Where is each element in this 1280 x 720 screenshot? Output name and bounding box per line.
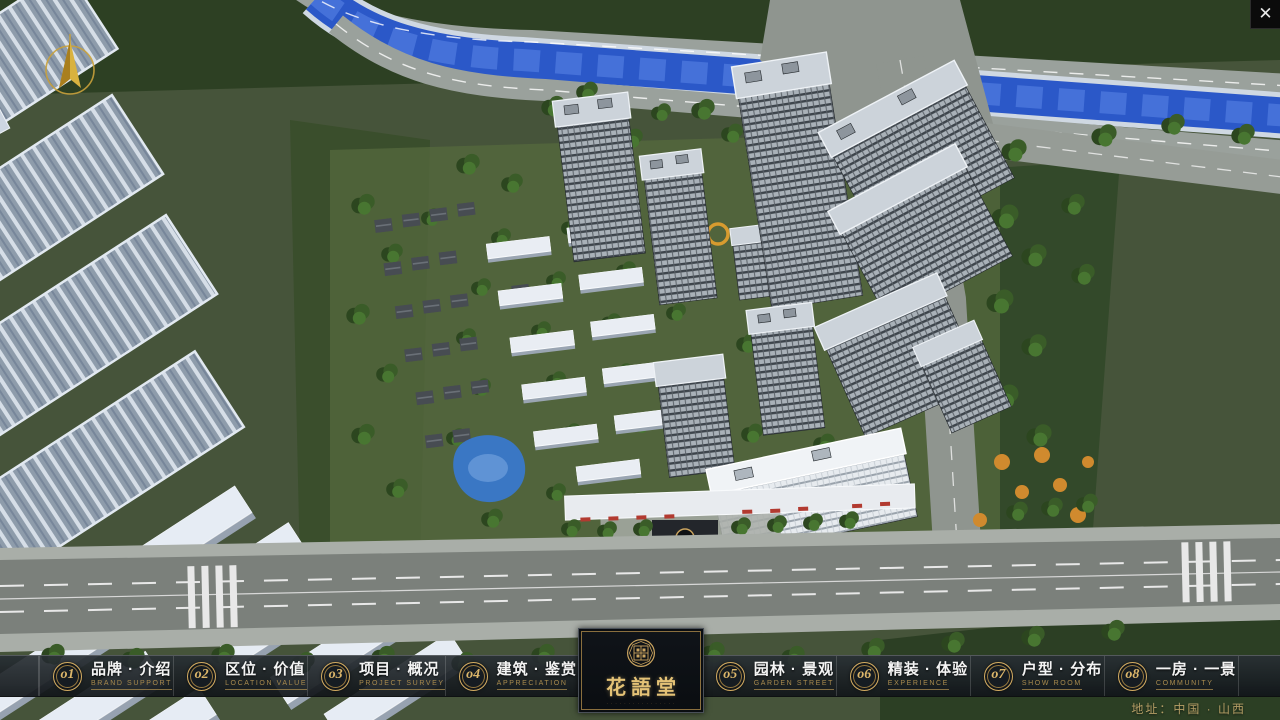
menu-item-floorplan[interactable]: o7 户型 · 分布 SHOW ROOM [970,656,1104,696]
menu-item-brand[interactable]: o1 品牌 · 介绍 BRAND SUPPORT [39,656,173,696]
menu-item-room-view[interactable]: o8 一房 · 一景 COMMUNITY [1104,656,1238,696]
menu-item-label: 品牌 · 介绍 [91,662,172,677]
seal-emblem-icon [626,638,656,668]
project-name-caption: · · · · · · · · · · · · · · · · [607,702,676,706]
menu-item-garden[interactable]: o5 园林 · 景观 GARDEN STREET [703,656,836,696]
item-number-badge: o2 [187,662,216,691]
menu-item-sublabel: BRAND SUPPORT [91,680,172,690]
item-number-badge: o8 [1118,662,1147,691]
item-number-badge: o6 [850,662,879,691]
aerial-render-scene [0,0,1280,720]
bar-spacer [0,656,39,696]
item-number-badge: o4 [459,662,488,691]
menu-item-sublabel: APPRECIATION [497,680,568,690]
menu-item-label: 区位 · 价值 [225,662,307,677]
menu-item-sublabel: COMMUNITY [1156,680,1214,690]
menu-item-decoration[interactable]: o6 精装 · 体验 EXPERIENCE [836,656,970,696]
item-number-badge: o3 [321,662,350,691]
close-button[interactable]: ✕ [1250,0,1280,29]
sales-presentation-window: ✕ o1 品牌 · 介绍 BRAND SUPPORT o2 区位 · 价值 LO… [0,0,1280,720]
project-address: 地址：中国 · 山西 [1131,700,1246,717]
bar-spacer [1238,656,1280,696]
item-number-badge: o7 [984,662,1013,691]
compass-icon [40,32,100,102]
project-name: 花語堂 [601,671,681,700]
menu-item-location[interactable]: o2 区位 · 价值 LOCATION VALUE [173,656,307,696]
menu-item-label: 园林 · 景观 [754,662,834,677]
item-number-badge: o1 [53,662,82,691]
menu-item-label: 户型 · 分布 [1022,662,1102,677]
menu-item-sublabel: LOCATION VALUE [225,680,307,690]
menu-item-label: 精装 · 体验 [888,662,968,677]
menu-item-label: 一房 · 一景 [1156,662,1236,677]
menu-item-sublabel: GARDEN STREET [754,680,834,690]
project-logo[interactable]: 花語堂 · · · · · · · · · · · · · · · · [578,628,704,713]
menu-item-architecture[interactable]: o4 建筑 · 鉴赏 APPRECIATION [445,656,579,696]
menu-item-sublabel: SHOW ROOM [1022,680,1082,690]
menu-item-sublabel: PROJECT SURVEY [359,680,445,690]
menu-item-label: 项目 · 概况 [359,662,445,677]
menu-item-project[interactable]: o3 项目 · 概况 PROJECT SURVEY [307,656,445,696]
menu-item-label: 建筑 · 鉴赏 [497,662,577,677]
item-number-badge: o5 [716,662,745,691]
menu-item-sublabel: EXPERIENCE [888,680,949,690]
